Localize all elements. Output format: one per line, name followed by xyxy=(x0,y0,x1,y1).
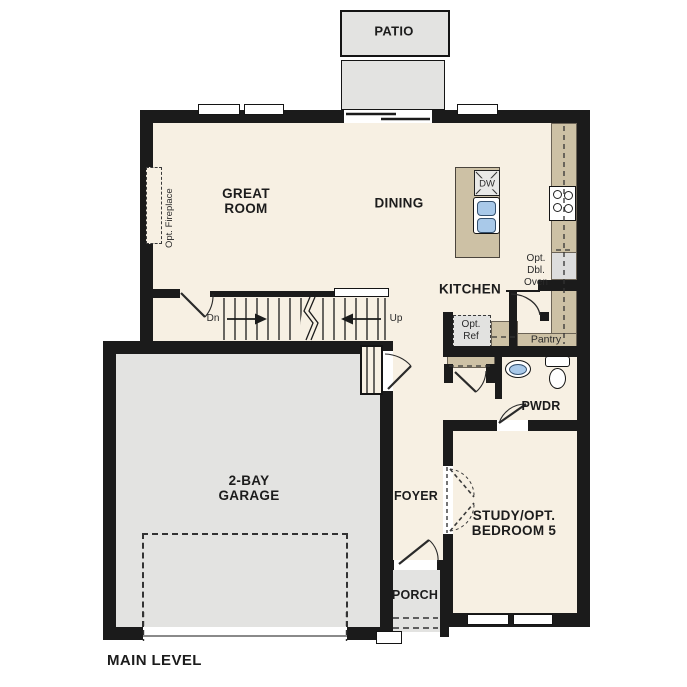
garage-entry-door-panel xyxy=(388,366,411,389)
closet-door-panel xyxy=(455,372,476,392)
pantry-label: Pantry xyxy=(531,334,561,347)
stairs-down-arrowhead xyxy=(255,314,267,325)
room-label-garage: 2-BAY GARAGE xyxy=(218,473,279,504)
floor-plan: PATIO GREAT ROOM DINING KITCHEN 2-BAY GA… xyxy=(0,0,687,687)
great-room-line2: ROOM xyxy=(222,201,270,216)
room-label-powder: PWDR xyxy=(522,399,561,413)
room-label-study: STUDY/OPT. BEDROOM 5 xyxy=(472,508,556,539)
room-label-patio: PATIO xyxy=(374,25,413,40)
room-label-dining: DINING xyxy=(374,195,423,210)
garage-line1: 2-BAY xyxy=(218,473,279,488)
room-label-porch: PORCH xyxy=(392,588,438,602)
oven-line2: Dbl. xyxy=(524,265,548,277)
slider-door-icon xyxy=(346,114,430,119)
stairs-up-arrowhead xyxy=(341,314,353,325)
pantry-door-arc xyxy=(511,294,540,315)
study-line2: BEDROOM 5 xyxy=(472,523,556,538)
room-label-kitchen: KITCHEN xyxy=(439,281,501,296)
oven-line1: Opt. xyxy=(524,253,548,265)
ref-line1: Opt. xyxy=(462,319,481,331)
stairs-up-label: Up xyxy=(390,313,403,325)
stairs-down-label: Dn xyxy=(207,313,220,325)
front-door-arc xyxy=(429,540,438,562)
garage-entry-door-arc xyxy=(385,354,411,366)
study-line1: STUDY/OPT. xyxy=(472,508,556,523)
garage-line2: GARAGE xyxy=(218,488,279,503)
oven-line3: Oven xyxy=(524,277,548,289)
front-door-panel xyxy=(399,540,429,564)
opt-fireplace-label: Opt. Fireplace xyxy=(164,168,175,248)
opt-double-oven-label: Opt. Dbl. Oven xyxy=(524,253,548,289)
plan-title: MAIN LEVEL xyxy=(107,652,202,669)
room-label-great-room: GREAT ROOM xyxy=(222,186,270,217)
opt-refrigerator-label: Opt. Ref xyxy=(462,319,481,343)
stair-door-panel xyxy=(181,293,205,317)
room-label-foyer: FOYER xyxy=(394,489,438,503)
ref-line2: Ref xyxy=(462,331,481,343)
linework-layer xyxy=(0,0,687,687)
closet-door-arc xyxy=(476,371,486,392)
landing-treads xyxy=(367,347,374,393)
dishwasher-label: DW xyxy=(478,178,496,189)
great-room-line1: GREAT xyxy=(222,186,270,201)
